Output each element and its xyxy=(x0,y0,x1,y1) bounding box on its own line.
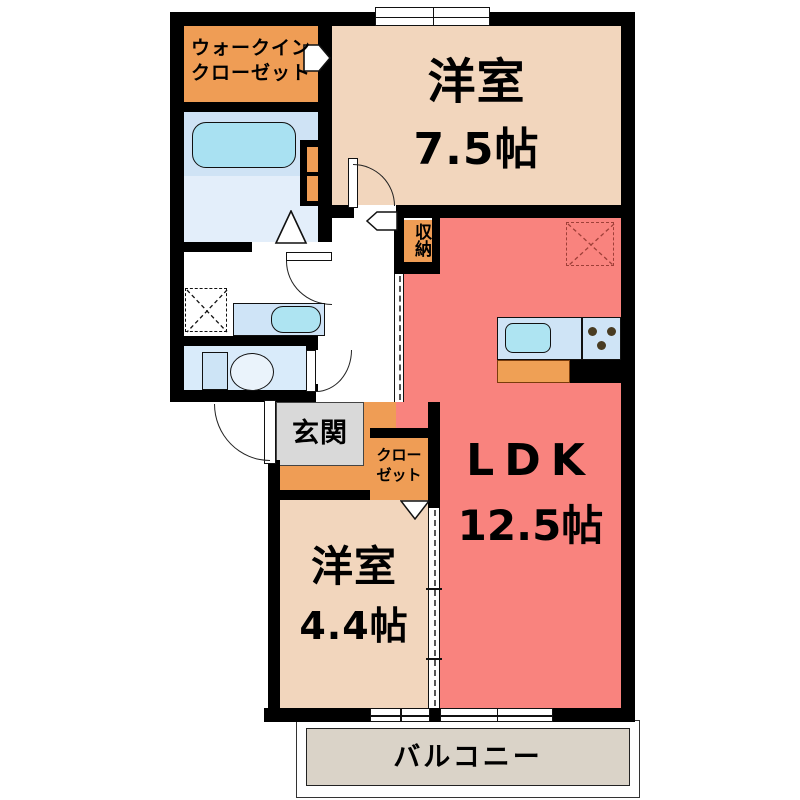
wall xyxy=(553,708,635,722)
ldk-name: LDK xyxy=(440,428,621,494)
bath-folding-door-icon xyxy=(274,210,308,244)
ldk-size: 12.5帖 xyxy=(440,494,621,557)
burner-icon xyxy=(597,341,606,350)
room-7-5-size: 7.5帖 xyxy=(332,118,621,182)
washroom-door-swing xyxy=(286,261,332,305)
closet-door-icon xyxy=(400,500,430,520)
window xyxy=(440,708,553,722)
washer-space-icon xyxy=(185,288,227,332)
room-7-5-label: 洋室 7.5帖 xyxy=(332,48,621,181)
wall xyxy=(621,12,635,722)
floor-plan: ウォークイン クローゼット 洋室 7.5帖 LDK 12.5帖 洋室 4.4帖 … xyxy=(0,0,800,800)
burner-icon xyxy=(588,327,597,336)
wall xyxy=(428,402,440,508)
bathtub-icon xyxy=(192,122,296,168)
ldk-label: LDK 12.5帖 xyxy=(440,428,621,557)
vanity-sink-icon xyxy=(271,306,321,333)
walk-in-closet-label-line1: ウォークイン xyxy=(184,36,318,61)
walk-in-closet-label: ウォークイン クローゼット xyxy=(184,36,318,85)
wall xyxy=(264,708,372,722)
wall xyxy=(394,262,440,274)
room-ldk-southwest xyxy=(396,402,428,428)
entrance-label: 玄関 xyxy=(276,416,364,451)
room-ldk-west xyxy=(404,274,440,402)
kitchen-sink-icon xyxy=(505,323,551,353)
wall xyxy=(396,205,621,218)
wall xyxy=(184,336,306,346)
closet-label-line1: クロー xyxy=(370,446,428,466)
washroom-door-leaf xyxy=(286,252,332,261)
hall-strip-bottom xyxy=(276,466,364,492)
kitchen-wall-block xyxy=(570,360,621,383)
toilet-bowl-icon xyxy=(230,353,274,391)
fridge-space-icon xyxy=(566,222,614,266)
kitchen-cabinet-icon xyxy=(497,360,570,383)
wall xyxy=(184,102,318,112)
closet-label-line2: ゼット xyxy=(370,466,428,486)
room-7-5-name: 洋室 xyxy=(332,48,621,118)
closet-label: クロー ゼット xyxy=(370,446,428,485)
balcony-label: バルコニー xyxy=(306,740,630,775)
wall xyxy=(170,12,184,402)
wall xyxy=(170,390,316,402)
toilet-tank-icon xyxy=(202,352,228,390)
toilet-door-swing xyxy=(316,350,352,392)
window xyxy=(370,708,430,722)
entrance-door-swing xyxy=(214,404,270,461)
wall xyxy=(170,242,252,252)
storage-door-icon xyxy=(366,211,398,231)
sliding-door-hall-ldk xyxy=(394,274,404,402)
storage-label: 収納 xyxy=(406,223,432,257)
window xyxy=(375,7,490,26)
room-4-4-label: 洋室 4.4帖 xyxy=(280,535,428,655)
toilet-door-leaf xyxy=(306,350,316,392)
wall xyxy=(306,336,318,350)
burner-icon xyxy=(607,327,616,336)
sliding-door-44-ldk xyxy=(428,508,440,708)
room-4-4-name: 洋室 xyxy=(280,535,428,598)
room-4-4-size: 4.4帖 xyxy=(280,598,428,655)
wall xyxy=(268,490,370,500)
walk-in-closet-label-line2: クローゼット xyxy=(184,61,318,86)
